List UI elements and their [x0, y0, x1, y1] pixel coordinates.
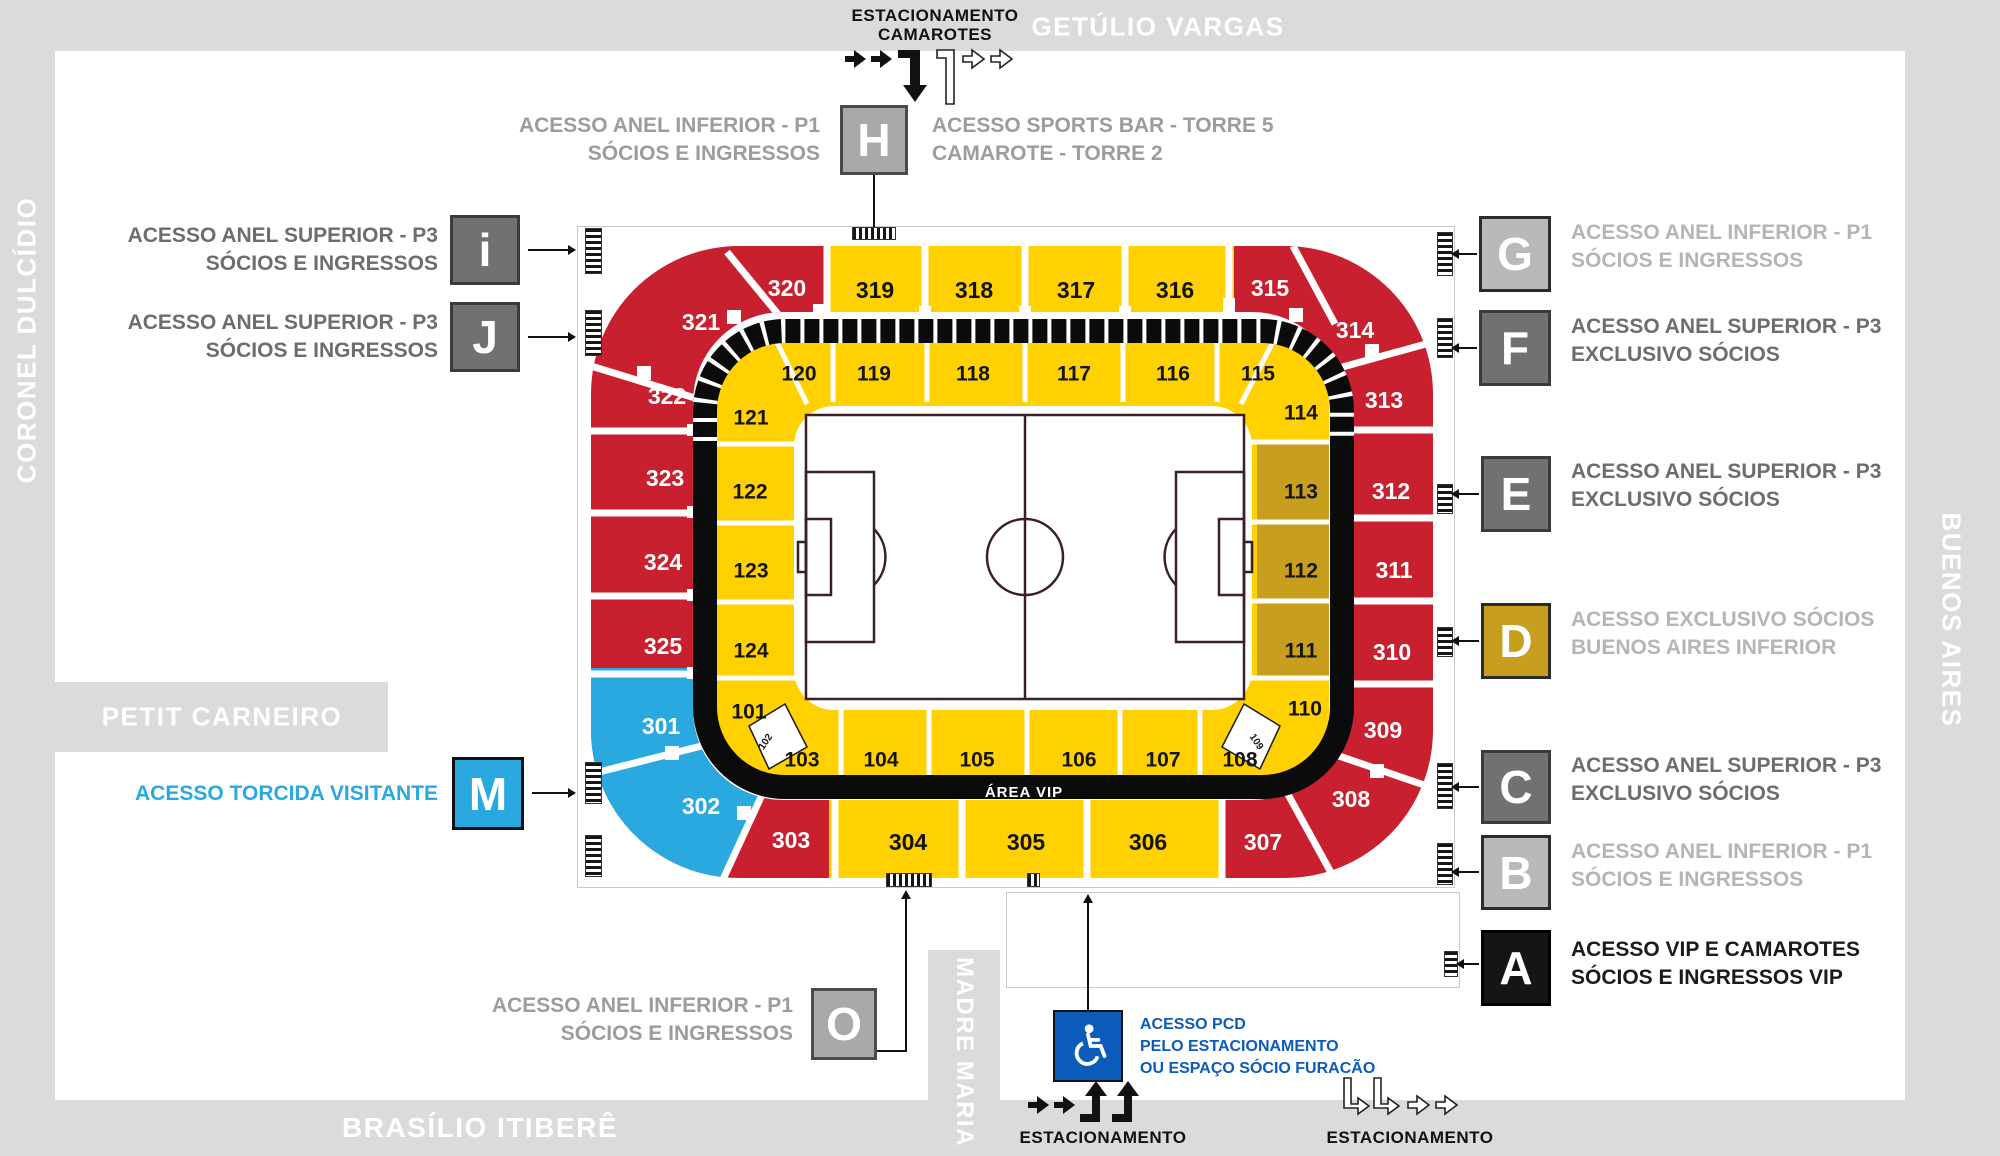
parking-camarotes-arrows-icon — [845, 42, 1025, 114]
stairs-icon — [585, 228, 602, 274]
gate-A-arrowhead-icon — [1456, 959, 1464, 969]
gate-D-arrow — [1459, 640, 1479, 642]
gate-o-connector — [877, 1050, 907, 1052]
section-108[interactable]: 108 — [1222, 749, 1257, 772]
access-gate-letter: D — [1499, 618, 1532, 664]
access-gate-B[interactable]: B — [1481, 835, 1551, 910]
access-gate-F[interactable]: F — [1479, 310, 1551, 386]
section-309[interactable]: 309 — [1364, 717, 1402, 743]
access-gate-E[interactable]: E — [1481, 456, 1551, 532]
access-gate-letter: C — [1499, 764, 1532, 810]
gate-o-arrowhead-icon — [901, 890, 911, 899]
section-318[interactable]: 318 — [955, 277, 994, 303]
section-325[interactable]: 325 — [644, 633, 683, 659]
vip-access-area-box — [1006, 892, 1460, 988]
section-101[interactable]: 101 — [731, 701, 766, 724]
parking-camarotes-label-line1: ESTACIONAMENTO — [845, 6, 1025, 26]
gate-C-arrowhead-icon — [1451, 782, 1459, 792]
gate-J-arrow — [528, 336, 568, 338]
section-305[interactable]: 305 — [1007, 829, 1046, 855]
section-118[interactable]: 118 — [956, 363, 990, 386]
access-gate-E-label: ACESSO ANEL SUPERIOR - P3EXCLUSIVO SÓCIO… — [1571, 458, 1951, 514]
section-124[interactable]: 124 — [733, 640, 768, 663]
section-114[interactable]: 114 — [1284, 402, 1318, 425]
access-gate-letter: A — [1499, 945, 1532, 991]
pcd-connector — [1087, 896, 1089, 1010]
section-120[interactable]: 120 — [781, 363, 816, 386]
stairs-icon — [1027, 873, 1040, 887]
section-310[interactable]: 310 — [1373, 639, 1411, 665]
section-320[interactable]: 320 — [768, 275, 806, 301]
street-getulio-vargas: GETÚLIO VARGAS — [1031, 12, 1284, 43]
section-322[interactable]: 322 — [648, 383, 686, 409]
street-petit-carneiro: PETIT CARNEIRO — [102, 702, 343, 733]
section-112[interactable]: 112 — [1284, 560, 1318, 583]
access-gate-D-label: ACESSO EXCLUSIVO SÓCIOSBUENOS AIRES INFE… — [1571, 606, 1951, 662]
gate-h-connector — [873, 175, 875, 227]
street-madre-maria: MADRE MARIA — [950, 957, 978, 1147]
stadium-access-map: { "streets": { "top": "GETÚLIO VARGAS", … — [0, 0, 2000, 1156]
access-gate-J[interactable]: J — [450, 302, 520, 372]
section-119[interactable]: 119 — [857, 363, 891, 386]
gate-M-arrowhead-icon — [568, 788, 576, 798]
street-brasilio-itibere: BRASÍLIO ITIBERÊ — [342, 1112, 618, 1144]
section-303[interactable]: 303 — [772, 827, 810, 853]
gate-i-arrowhead-icon — [568, 245, 576, 255]
access-gate-O[interactable]: O — [811, 988, 877, 1060]
access-gate-G-label: ACESSO ANEL INFERIOR - P1SÓCIOS E INGRES… — [1571, 219, 1951, 275]
section-306[interactable]: 306 — [1129, 829, 1167, 855]
gate-o-connector — [905, 892, 907, 1052]
gate-G-arrowhead-icon — [1451, 249, 1459, 259]
gate-J-arrowhead-icon — [568, 332, 576, 342]
access-gate-i-label: ACESSO ANEL SUPERIOR - P3SÓCIOS E INGRES… — [118, 222, 438, 278]
access-gate-H-label: ACESSO ANEL INFERIOR - P1SÓCIOS E INGRES… — [500, 112, 820, 168]
section-307[interactable]: 307 — [1244, 829, 1282, 855]
gate-C-arrow — [1459, 786, 1479, 788]
stairs-icon — [585, 762, 602, 804]
area-vip-label: ÁREA VIP — [985, 784, 1063, 801]
access-gate-M[interactable]: M — [452, 757, 524, 830]
section-117[interactable]: 117 — [1057, 363, 1091, 386]
access-gate-letter: E — [1501, 471, 1532, 517]
stadium-seating-map: ÁREA VIP 3013023033043053063073083093103… — [577, 226, 1455, 888]
section-314[interactable]: 314 — [1336, 317, 1375, 343]
gate-F-arrow — [1459, 347, 1477, 349]
gate-A-arrow — [1464, 963, 1479, 965]
section-323[interactable]: 323 — [646, 465, 684, 491]
access-gate-B-label: ACESSO ANEL INFERIOR - P1SÓCIOS E INGRES… — [1571, 838, 1951, 894]
section-312[interactable]: 312 — [1372, 478, 1410, 504]
access-gate-M-label: ACESSO TORCIDA VISITANTE — [98, 780, 438, 808]
section-302[interactable]: 302 — [682, 793, 720, 819]
section-319[interactable]: 319 — [856, 277, 894, 303]
section-105[interactable]: 105 — [959, 749, 994, 772]
stairs-icon — [1437, 843, 1453, 885]
pcd-access-label-line1: ACESSO PCD — [1140, 1014, 1246, 1036]
section-122[interactable]: 122 — [732, 481, 767, 504]
section-113[interactable]: 113 — [1284, 481, 1318, 504]
parking-south-label: ESTACIONAMENTO — [1013, 1128, 1193, 1148]
section-301[interactable]: 301 — [642, 713, 681, 739]
access-gate-letter: G — [1497, 231, 1533, 277]
access-gate-letter: F — [1501, 325, 1529, 371]
section-313[interactable]: 313 — [1365, 387, 1403, 413]
section-106[interactable]: 106 — [1061, 749, 1096, 772]
access-gate-letter: H — [857, 117, 890, 163]
section-311[interactable]: 311 — [1375, 557, 1412, 583]
access-gate-letter: B — [1499, 850, 1532, 896]
stairs-icon — [585, 310, 602, 356]
access-gate-G[interactable]: G — [1479, 216, 1551, 292]
wheelchair-icon — [1065, 1020, 1111, 1072]
access-gate-D[interactable]: D — [1481, 603, 1551, 679]
gate-B-arrowhead-icon — [1451, 867, 1459, 877]
section-115[interactable]: 115 — [1241, 363, 1275, 386]
pcd-arrowhead-icon — [1083, 894, 1093, 903]
street-coronel-dulcidio: CORONEL DULCÍDIO — [12, 197, 43, 483]
access-gate-A-label: ACESSO VIP E CAMAROTESSÓCIOS E INGRESSOS… — [1571, 936, 1951, 992]
stairs-icon — [585, 835, 602, 877]
access-gate-letter: O — [826, 1001, 862, 1047]
gate-E-arrow — [1459, 493, 1479, 495]
parking-south-arrows-icon — [1028, 1080, 1178, 1124]
access-gate-F-label: ACESSO ANEL SUPERIOR - P3EXCLUSIVO SÓCIO… — [1571, 313, 1951, 369]
section-107[interactable]: 107 — [1145, 749, 1180, 772]
section-304[interactable]: 304 — [889, 829, 928, 855]
parking-southeast-arrows-icon — [1342, 1076, 1492, 1126]
gate-E-arrowhead-icon — [1451, 489, 1459, 499]
section-308[interactable]: 308 — [1332, 786, 1371, 812]
section-103[interactable]: 103 — [784, 749, 819, 772]
section-315[interactable]: 315 — [1251, 275, 1290, 301]
access-gate-letter: M — [469, 771, 507, 817]
gate-B-arrow — [1459, 871, 1479, 873]
section-121[interactable]: 121 — [733, 407, 768, 430]
access-gate-letter: i — [479, 227, 492, 273]
gate-M-arrow — [532, 792, 568, 794]
access-gate-J-label: ACESSO ANEL SUPERIOR - P3SÓCIOS E INGRES… — [118, 309, 438, 365]
stairs-icon — [886, 873, 932, 887]
football-pitch — [798, 415, 1252, 699]
section-111[interactable]: 111 — [1285, 640, 1318, 663]
section-123[interactable]: 123 — [733, 560, 768, 583]
section-116[interactable]: 116 — [1156, 363, 1190, 386]
access-gate-i[interactable]: i — [450, 215, 520, 285]
pcd-access-label-line2: PELO ESTACIONAMENTO — [1140, 1036, 1339, 1058]
section-317[interactable]: 317 — [1057, 277, 1095, 303]
section-110[interactable]: 110 — [1288, 698, 1322, 721]
gate-F-arrowhead-icon — [1451, 343, 1459, 353]
pcd-access-sign[interactable] — [1053, 1010, 1123, 1082]
access-gate-H-label: ACESSO SPORTS BAR - TORRE 5CAMAROTE - TO… — [932, 112, 1312, 168]
section-316[interactable]: 316 — [1156, 277, 1194, 303]
gate-G-arrow — [1459, 253, 1477, 255]
pcd-access-label-line3: OU ESPAÇO SÓCIO FURACÃO — [1140, 1058, 1375, 1080]
access-gate-C-label: ACESSO ANEL SUPERIOR - P3EXCLUSIVO SÓCIO… — [1571, 752, 1951, 808]
section-104[interactable]: 104 — [863, 749, 898, 772]
section-321[interactable]: 321 — [682, 309, 721, 335]
access-gate-letter: J — [472, 314, 498, 360]
parking-southeast-label: ESTACIONAMENTO — [1320, 1128, 1500, 1148]
section-324[interactable]: 324 — [644, 549, 683, 575]
stairs-icon — [852, 227, 896, 240]
access-gate-O-label: ACESSO ANEL INFERIOR - P1SÓCIOS E INGRES… — [473, 992, 793, 1048]
gate-i-arrow — [528, 249, 568, 251]
gate-D-arrowhead-icon — [1451, 636, 1459, 646]
access-gate-C[interactable]: C — [1481, 750, 1551, 824]
access-gate-H[interactable]: H — [840, 105, 908, 175]
access-gate-A[interactable]: A — [1481, 930, 1551, 1006]
